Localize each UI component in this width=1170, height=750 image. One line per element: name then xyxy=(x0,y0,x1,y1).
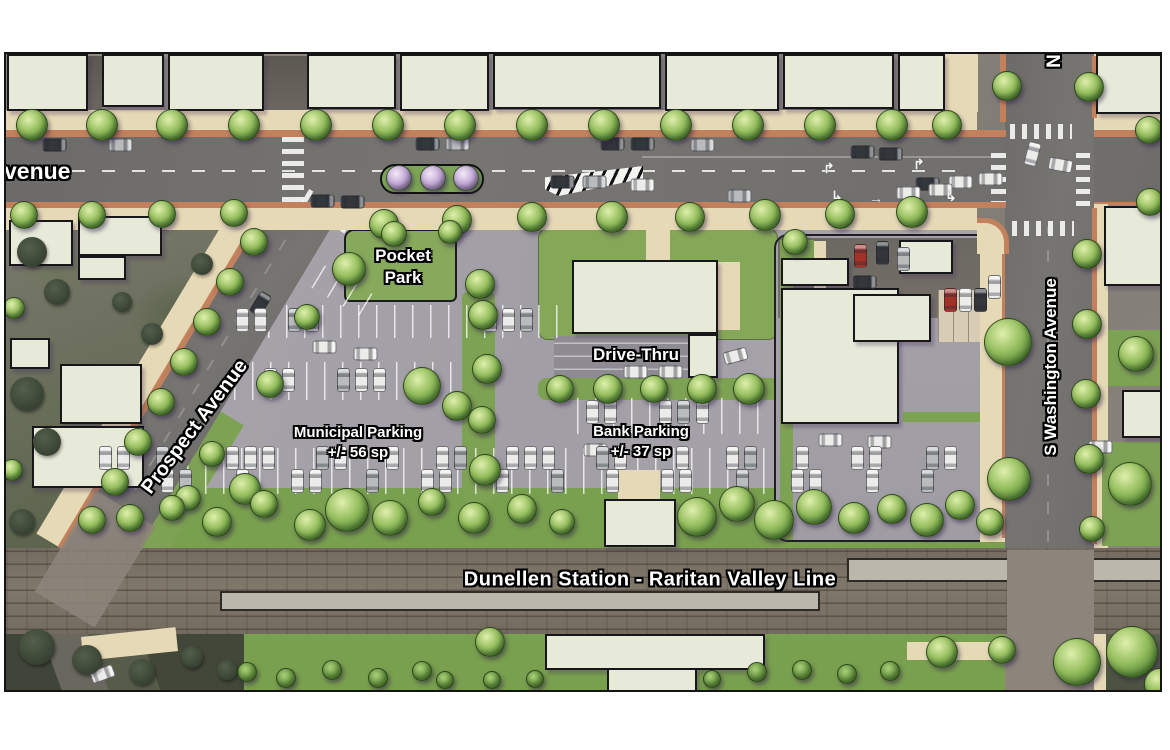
car xyxy=(254,308,267,332)
car xyxy=(944,288,957,312)
tree xyxy=(1074,444,1104,474)
car xyxy=(744,446,757,470)
municipal-parking-label: Municipal Parking +/- 56 sp xyxy=(294,423,422,464)
building xyxy=(307,54,396,109)
tree xyxy=(418,488,446,516)
bush xyxy=(747,662,767,682)
bush xyxy=(368,668,388,688)
tree xyxy=(403,367,441,405)
tree xyxy=(472,354,502,384)
car xyxy=(244,446,257,470)
building xyxy=(898,54,945,111)
aerial-tree xyxy=(44,279,70,305)
tree xyxy=(987,457,1031,501)
turn-arrow-marking: ↳ xyxy=(945,189,957,203)
tree xyxy=(294,304,320,330)
tree xyxy=(294,509,326,541)
car xyxy=(502,308,515,332)
building xyxy=(853,294,931,342)
car xyxy=(520,308,533,332)
tree xyxy=(116,504,144,532)
car xyxy=(679,469,692,493)
car xyxy=(988,275,1001,299)
car xyxy=(226,446,239,470)
crosswalk-intersection-east xyxy=(1076,150,1090,206)
car xyxy=(439,469,452,493)
tree xyxy=(4,297,25,319)
car xyxy=(854,244,867,268)
car xyxy=(959,288,972,312)
car xyxy=(878,148,902,161)
car xyxy=(236,308,249,332)
building xyxy=(1104,206,1162,286)
tree xyxy=(16,109,48,141)
north-avenue-label-partial: venue xyxy=(4,158,70,185)
tree xyxy=(976,508,1004,536)
car xyxy=(921,469,934,493)
building xyxy=(688,334,718,378)
car xyxy=(974,288,987,312)
car xyxy=(454,446,467,470)
car xyxy=(606,469,619,493)
tree xyxy=(796,489,832,525)
bank-parking-label: Bank Parking +/- 37 sp xyxy=(593,422,689,463)
washington-sidewalk-nw xyxy=(945,54,978,112)
car xyxy=(99,446,112,470)
tree xyxy=(444,109,476,141)
station-platform-north xyxy=(847,558,1162,582)
tree xyxy=(332,252,366,286)
tree xyxy=(1071,379,1101,409)
aerial-tree xyxy=(33,428,61,456)
tree xyxy=(300,109,332,141)
bush xyxy=(483,671,501,689)
bush xyxy=(792,660,812,680)
tree xyxy=(170,348,198,376)
bush xyxy=(526,670,544,688)
tree xyxy=(876,109,908,141)
car xyxy=(690,139,714,152)
washington-north-label-partial: N xyxy=(1044,54,1066,68)
bush xyxy=(276,668,296,688)
car xyxy=(524,446,537,470)
tree xyxy=(148,200,176,228)
car xyxy=(415,138,439,151)
bush xyxy=(322,660,342,680)
car xyxy=(340,196,364,209)
tree xyxy=(78,506,106,534)
building xyxy=(168,54,264,111)
bush xyxy=(880,661,900,681)
car xyxy=(586,400,599,424)
north-avenue-lane-line xyxy=(642,156,1002,158)
pocket-park-label-line1: Pocket xyxy=(375,245,431,267)
plan-frame: ↱↳→↱↳ venue Prospect Avenue S Washington… xyxy=(4,52,1162,692)
bush xyxy=(703,670,721,688)
car xyxy=(582,176,606,189)
tree xyxy=(546,375,574,403)
aerial-tree xyxy=(10,377,44,411)
tree xyxy=(549,509,575,535)
tree xyxy=(896,196,928,228)
site-plan-stage: ↱↳→↱↳ venue Prospect Avenue S Washington… xyxy=(0,0,1170,750)
car xyxy=(337,368,350,392)
tree xyxy=(372,109,404,141)
car xyxy=(373,368,386,392)
building xyxy=(400,54,489,111)
building xyxy=(493,54,661,109)
tree xyxy=(732,109,764,141)
washington-avenue-label: S Washington Avenue xyxy=(1041,278,1061,456)
pocket-park-label-line2: Park xyxy=(375,267,431,289)
pocket-park-label: Pocket Park xyxy=(375,245,431,289)
aerial-tree xyxy=(141,323,163,345)
tree xyxy=(468,406,496,434)
car xyxy=(108,139,132,152)
car xyxy=(262,446,275,470)
alley-2 xyxy=(263,56,307,110)
car xyxy=(630,138,654,151)
car xyxy=(818,434,842,447)
crosswalk-north-ave xyxy=(282,136,304,202)
tree xyxy=(325,488,369,532)
car xyxy=(978,173,1002,186)
car xyxy=(623,366,647,379)
car xyxy=(851,446,864,470)
car xyxy=(550,176,574,189)
tree xyxy=(240,228,268,256)
tree xyxy=(640,375,668,403)
tree xyxy=(381,221,407,247)
car xyxy=(506,446,519,470)
turn-arrow-marking: ↱ xyxy=(913,157,925,171)
tree xyxy=(78,201,106,229)
building xyxy=(10,338,50,369)
tree xyxy=(458,502,490,534)
bank-parking-label-line1: Bank Parking xyxy=(593,422,689,442)
tree xyxy=(877,494,907,524)
tree xyxy=(199,441,225,467)
washington-rail-crossing xyxy=(1007,550,1094,634)
crosswalk-intersection-south xyxy=(1012,221,1074,236)
tree xyxy=(1072,239,1102,269)
tree xyxy=(507,494,537,524)
tree xyxy=(660,109,692,141)
car xyxy=(791,469,804,493)
tree xyxy=(220,199,248,227)
tree xyxy=(516,109,548,141)
car xyxy=(866,469,879,493)
building xyxy=(545,634,765,670)
tree xyxy=(945,490,975,520)
car xyxy=(355,368,368,392)
purple-tree xyxy=(453,165,479,191)
tree xyxy=(469,454,501,486)
aerial-tree xyxy=(217,660,237,680)
tree xyxy=(838,502,870,534)
station-platform-south xyxy=(220,591,820,611)
aerial-tree xyxy=(129,659,155,685)
car xyxy=(291,469,304,493)
tree xyxy=(517,202,547,232)
car xyxy=(677,400,690,424)
car xyxy=(726,446,739,470)
aerial-tree xyxy=(112,292,132,312)
building xyxy=(607,668,697,692)
tree xyxy=(372,500,408,536)
car xyxy=(727,190,751,203)
car xyxy=(926,446,939,470)
tree xyxy=(932,110,962,140)
building xyxy=(783,54,894,109)
bank-parking-label-line2: +/- 37 sp xyxy=(593,442,689,462)
tree xyxy=(1135,116,1162,144)
car xyxy=(310,195,334,208)
tree xyxy=(10,201,38,229)
tree xyxy=(992,71,1022,101)
tree xyxy=(910,503,944,537)
aerial-tree xyxy=(181,646,203,668)
tree xyxy=(733,373,765,405)
tree xyxy=(687,374,717,404)
building xyxy=(781,258,849,286)
tree xyxy=(754,500,794,540)
car xyxy=(366,469,379,493)
tree xyxy=(719,486,755,522)
building xyxy=(78,256,126,280)
tree xyxy=(250,490,278,518)
tree xyxy=(475,627,505,657)
building xyxy=(1096,54,1162,114)
tree xyxy=(593,374,623,404)
car xyxy=(542,446,555,470)
building xyxy=(102,54,164,107)
tree xyxy=(438,220,462,244)
aerial-tree xyxy=(72,645,102,675)
bush xyxy=(837,664,857,684)
tree xyxy=(596,201,628,233)
purple-tree xyxy=(420,165,446,191)
building xyxy=(665,54,779,111)
tree xyxy=(156,109,188,141)
car xyxy=(876,241,889,265)
tree xyxy=(677,497,717,537)
tree xyxy=(588,109,620,141)
building xyxy=(604,499,676,547)
north-avenue-road xyxy=(6,132,1162,204)
tree xyxy=(468,300,498,330)
north-curb-west xyxy=(6,130,1006,137)
car xyxy=(309,469,322,493)
building xyxy=(572,260,718,334)
building xyxy=(1122,390,1162,438)
tree xyxy=(1074,72,1104,102)
tree xyxy=(86,109,118,141)
car xyxy=(850,146,874,159)
tree xyxy=(1118,336,1154,372)
tree xyxy=(988,636,1016,664)
tree xyxy=(124,428,152,456)
bush xyxy=(237,662,257,682)
tree xyxy=(101,468,129,496)
car xyxy=(551,469,564,493)
tree xyxy=(1079,516,1105,542)
bush xyxy=(436,671,454,689)
tree xyxy=(256,370,284,398)
tree xyxy=(675,202,705,232)
tree xyxy=(202,507,232,537)
turn-arrow-marking: → xyxy=(869,191,883,205)
tree xyxy=(1053,638,1101,686)
tree xyxy=(159,495,185,521)
car xyxy=(659,400,672,424)
aerial-tree xyxy=(191,253,213,275)
municipal-parking-label-line1: Municipal Parking xyxy=(294,423,422,443)
car xyxy=(312,341,336,354)
tree xyxy=(465,269,495,299)
crosswalk-intersection-north xyxy=(1010,124,1072,139)
tree xyxy=(825,199,855,229)
tree xyxy=(193,308,221,336)
tree xyxy=(1136,188,1162,216)
tree xyxy=(228,109,260,141)
building xyxy=(60,364,142,424)
turn-arrow-marking: ↱ xyxy=(823,161,835,175)
tree xyxy=(147,388,175,416)
tree xyxy=(216,268,244,296)
car xyxy=(630,179,654,192)
car xyxy=(852,276,876,289)
tree xyxy=(926,636,958,668)
aerial-tree xyxy=(17,237,47,267)
car xyxy=(869,446,882,470)
tree xyxy=(749,199,781,231)
car xyxy=(353,348,377,361)
tree xyxy=(804,109,836,141)
tree xyxy=(1108,462,1152,506)
station-label: Dunellen Station - Raritan Valley Line xyxy=(464,569,836,592)
car xyxy=(436,446,449,470)
aerial-tree xyxy=(19,629,55,665)
tree xyxy=(782,229,808,255)
car xyxy=(42,139,66,152)
purple-tree xyxy=(386,165,412,191)
car xyxy=(897,247,910,271)
municipal-parking-label-line2: +/- 56 sp xyxy=(294,443,422,463)
tree xyxy=(1072,309,1102,339)
car xyxy=(944,446,957,470)
aerial-tree xyxy=(9,509,35,535)
car xyxy=(796,446,809,470)
alley-1 xyxy=(88,56,102,110)
drive-thru-label: Drive-Thru xyxy=(593,345,679,365)
plan-world: ↱↳→↱↳ venue Prospect Avenue S Washington… xyxy=(4,52,1162,692)
building xyxy=(7,54,88,111)
tree xyxy=(984,318,1032,366)
bush xyxy=(412,661,432,681)
car xyxy=(661,469,674,493)
